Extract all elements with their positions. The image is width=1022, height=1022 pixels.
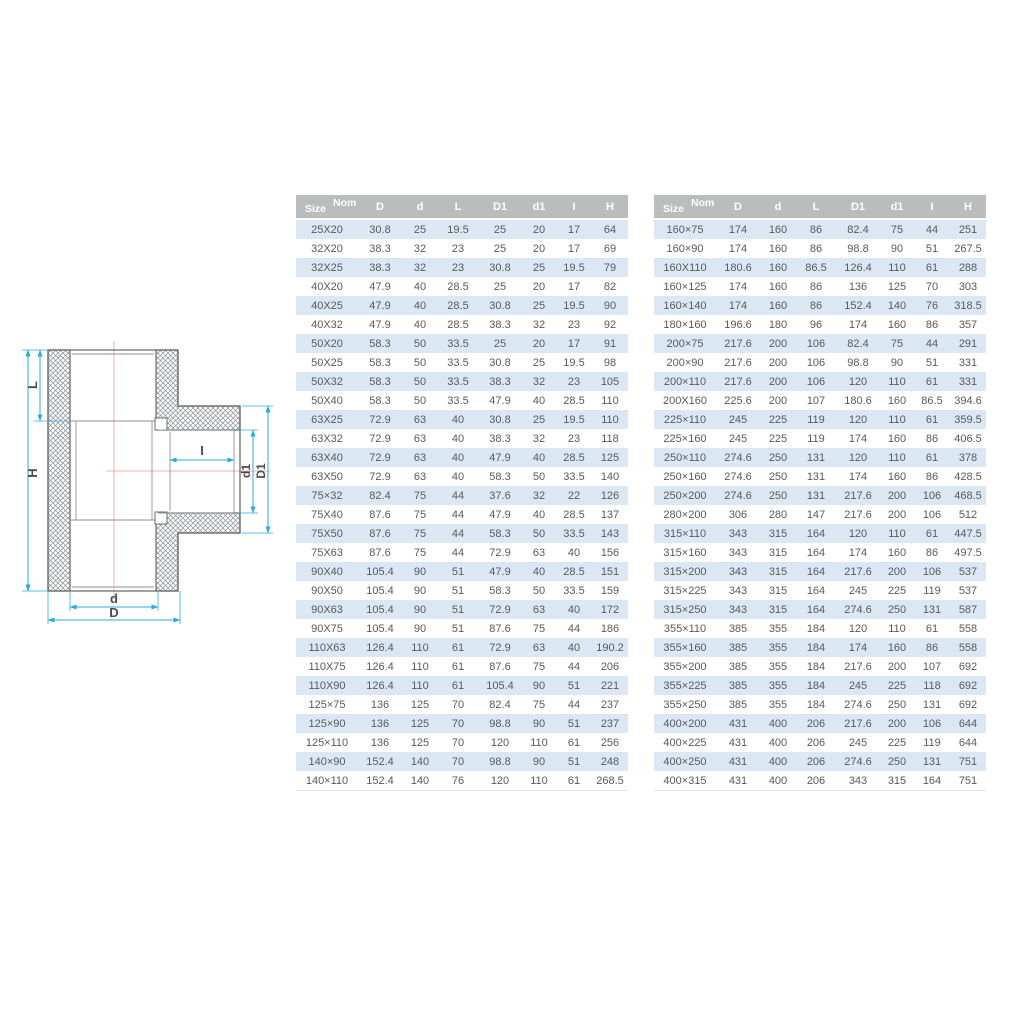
value-cell: 431 [716,752,760,771]
value-cell: 160 [880,543,914,562]
value-cell: 44 [556,695,592,714]
value-cell: 110 [880,524,914,543]
value-cell: 61 [556,771,592,791]
size-cell: 40X25 [296,296,358,315]
size-cell: 75X63 [296,543,358,562]
value-cell: 225 [760,429,796,448]
table-row: 75×3282.4754437.63222126 [296,486,628,505]
value-cell: 751 [950,752,986,771]
value-cell: 164 [796,600,836,619]
value-cell: 107 [914,657,950,676]
table-row: 50X2058.35033.525201791 [296,334,628,353]
value-cell: 120 [836,524,880,543]
column-header-H: H [950,195,986,219]
value-cell: 250 [880,600,914,619]
value-cell: 343 [716,562,760,581]
column-header-L: L [796,195,836,219]
value-cell: 44 [914,334,950,353]
table-row: 110X90126.411061105.49051221 [296,676,628,695]
value-cell: 50 [402,334,438,353]
value-cell: 447.5 [950,524,986,543]
value-cell: 245 [836,733,880,752]
value-cell: 217.6 [716,334,760,353]
dimension-table-small-sizes: SizeNomDdLD1d1IH25X2030.82519.5252017643… [296,195,628,791]
value-cell: 692 [950,676,986,695]
value-cell: 385 [716,676,760,695]
value-cell: 160 [880,429,914,448]
table-row: 225×11024522511912011061359.5 [654,410,986,429]
table-row: 40X2047.94028.525201782 [296,277,628,296]
size-cell: 250×110 [654,448,716,467]
table-row: 125×901361257098.89051237 [296,714,628,733]
value-cell: 51 [438,581,478,600]
value-cell: 75 [402,505,438,524]
value-cell: 30.8 [478,258,522,277]
size-cell: 90X63 [296,600,358,619]
value-cell: 87.6 [478,657,522,676]
size-cell: 315×200 [654,562,716,581]
value-cell: 19.5 [556,258,592,277]
value-cell: 225 [880,733,914,752]
value-cell: 692 [950,657,986,676]
value-cell: 315 [760,581,796,600]
table-row: 315×16034331516417416086497.5 [654,543,986,562]
dim-label-H: H [25,468,40,477]
value-cell: 315 [760,524,796,543]
value-cell: 303 [950,277,986,296]
value-cell: 692 [950,695,986,714]
value-cell: 76 [438,771,478,791]
table-row: 140×90152.41407098.89051248 [296,752,628,771]
value-cell: 44 [438,486,478,505]
value-cell: 61 [438,676,478,695]
value-cell: 30.8 [358,219,402,239]
size-cell: 400×200 [654,714,716,733]
table-row: 160X110180.616086.5126.411061288 [654,258,986,277]
size-cell: 40X20 [296,277,358,296]
value-cell: 32 [522,486,556,505]
value-cell: 200 [880,714,914,733]
table-row: 140×110152.41407612011061268.5 [296,771,628,791]
value-cell: 644 [950,714,986,733]
table-row: 50X3258.35033.538.33223105 [296,372,628,391]
value-cell: 25 [478,334,522,353]
tee-fitting-diagram: L H I d1 D1 d D [18,333,290,641]
value-cell: 25 [522,258,556,277]
value-cell: 110 [880,372,914,391]
value-cell: 105.4 [358,619,402,638]
value-cell: 217.6 [836,505,880,524]
value-cell: 237 [592,714,628,733]
value-cell: 61 [438,638,478,657]
value-cell: 63 [402,429,438,448]
value-cell: 355 [760,638,796,657]
dim-label-d: d [110,591,118,606]
value-cell: 225 [880,581,914,600]
size-cell: 400×225 [654,733,716,752]
size-cell: 63X32 [296,429,358,448]
nom-label: Nom [333,197,356,209]
value-cell: 119 [914,733,950,752]
value-cell: 110 [522,771,556,791]
table-row: 315×11034331516412011061447.5 [654,524,986,543]
value-cell: 28.5 [556,448,592,467]
value-cell: 174 [716,277,760,296]
value-cell: 92 [592,315,628,334]
value-cell: 106 [914,714,950,733]
size-cell: 315×160 [654,543,716,562]
value-cell: 23 [556,315,592,334]
value-cell: 140 [402,752,438,771]
value-cell: 274.6 [836,752,880,771]
value-cell: 33.5 [438,353,478,372]
value-cell: 40 [522,562,556,581]
value-cell: 136 [358,714,402,733]
value-cell: 512 [950,505,986,524]
size-cell: 140×110 [296,771,358,791]
value-cell: 32 [402,239,438,258]
value-cell: 250 [760,486,796,505]
value-cell: 86 [796,239,836,258]
value-cell: 90 [402,562,438,581]
value-cell: 50 [402,372,438,391]
value-cell: 225.6 [716,391,760,410]
value-cell: 537 [950,562,986,581]
size-label: Size [305,203,326,215]
value-cell: 200 [760,353,796,372]
value-cell: 20 [522,277,556,296]
value-cell: 87.6 [358,524,402,543]
value-cell: 431 [716,714,760,733]
value-cell: 190.2 [592,638,628,657]
value-cell: 76 [914,296,950,315]
value-cell: 152.4 [836,296,880,315]
value-cell: 331 [950,372,986,391]
value-cell: 51 [438,619,478,638]
size-cell: 315×250 [654,600,716,619]
value-cell: 90 [880,239,914,258]
value-cell: 72.9 [358,467,402,486]
value-cell: 105.4 [358,600,402,619]
value-cell: 160 [760,296,796,315]
value-cell: 40 [556,638,592,657]
value-cell: 82.4 [836,219,880,239]
value-cell: 32 [402,258,438,277]
table-row: 315×225343315164245225119537 [654,581,986,600]
value-cell: 63 [522,600,556,619]
value-cell: 180.6 [836,391,880,410]
value-cell: 136 [358,733,402,752]
value-cell: 86 [914,429,950,448]
value-cell: 23 [556,429,592,448]
value-cell: 280 [760,505,796,524]
table-row: 110X75126.41106187.67544206 [296,657,628,676]
value-cell: 37.6 [478,486,522,505]
value-cell: 200 [760,372,796,391]
value-cell: 51 [438,562,478,581]
table-row: 250×160274.625013117416086428.5 [654,467,986,486]
value-cell: 61 [914,524,950,543]
value-cell: 160 [760,258,796,277]
value-cell: 221 [592,676,628,695]
value-cell: 86 [914,315,950,334]
size-cell: 355×110 [654,619,716,638]
value-cell: 147 [796,505,836,524]
value-cell: 40 [402,296,438,315]
value-cell: 61 [914,410,950,429]
value-cell: 164 [796,543,836,562]
value-cell: 237 [592,695,628,714]
value-cell: 86 [796,296,836,315]
value-cell: 119 [796,429,836,448]
value-cell: 400 [760,752,796,771]
table-row: 250×200274.6250131217.6200106468.5 [654,486,986,505]
size-cell: 50X40 [296,391,358,410]
value-cell: 58.3 [358,334,402,353]
value-cell: 357 [950,315,986,334]
value-cell: 306 [716,505,760,524]
value-cell: 17 [556,334,592,353]
value-cell: 32 [522,429,556,448]
value-cell: 110 [402,638,438,657]
size-cell: 125×90 [296,714,358,733]
value-cell: 143 [592,524,628,543]
value-cell: 25 [478,219,522,239]
value-cell: 87.6 [478,619,522,638]
value-cell: 61 [438,657,478,676]
value-cell: 184 [796,657,836,676]
value-cell: 25 [402,219,438,239]
value-cell: 274.6 [716,486,760,505]
value-cell: 131 [796,448,836,467]
value-cell: 86 [914,467,950,486]
value-cell: 28.5 [438,315,478,334]
value-cell: 120 [836,410,880,429]
value-cell: 355 [760,676,796,695]
value-cell: 110 [880,619,914,638]
value-cell: 225 [880,676,914,695]
value-cell: 40 [522,391,556,410]
value-cell: 86.5 [914,391,950,410]
size-cell: 63X25 [296,410,358,429]
value-cell: 70 [914,277,950,296]
value-cell: 105.4 [358,562,402,581]
value-cell: 267.5 [950,239,986,258]
value-cell: 125 [592,448,628,467]
value-cell: 61 [914,258,950,277]
value-cell: 72.9 [358,429,402,448]
value-cell: 40 [438,410,478,429]
value-cell: 30.8 [478,410,522,429]
value-cell: 30.8 [478,296,522,315]
value-cell: 44 [438,524,478,543]
value-cell: 110 [402,676,438,695]
value-cell: 106 [796,334,836,353]
value-cell: 40 [402,277,438,296]
value-cell: 140 [592,467,628,486]
table-row: 50X4058.35033.547.94028.5110 [296,391,628,410]
column-header-D: D [716,195,760,219]
value-cell: 87.6 [358,505,402,524]
value-cell: 40 [556,543,592,562]
table-row: 200×75217.620010682.47544291 [654,334,986,353]
value-cell: 160 [880,315,914,334]
table-row: 400×315431400206343315164751 [654,771,986,791]
value-cell: 61 [556,733,592,752]
size-cell: 355×250 [654,695,716,714]
value-cell: 38.3 [478,315,522,334]
value-cell: 98.8 [836,239,880,258]
value-cell: 131 [914,695,950,714]
value-cell: 20 [522,334,556,353]
value-cell: 90 [402,581,438,600]
table-row: 355×200385355184217.6200107692 [654,657,986,676]
value-cell: 58.3 [478,581,522,600]
value-cell: 274.6 [836,600,880,619]
value-cell: 33.5 [438,391,478,410]
value-cell: 82.4 [358,486,402,505]
size-cell: 75X50 [296,524,358,543]
value-cell: 217.6 [836,714,880,733]
value-cell: 32 [522,315,556,334]
value-cell: 248 [592,752,628,771]
value-cell: 343 [836,771,880,791]
value-cell: 25 [478,277,522,296]
value-cell: 72.9 [478,543,522,562]
value-cell: 250 [880,752,914,771]
table-row: 75X4087.6754447.94028.5137 [296,505,628,524]
value-cell: 126.4 [358,657,402,676]
size-cell: 125×75 [296,695,358,714]
value-cell: 174 [836,543,880,562]
value-cell: 28.5 [556,562,592,581]
table-row: 160×14017416086152.414076318.5 [654,296,986,315]
value-cell: 38.3 [358,239,402,258]
dim-label-D: D [109,605,118,620]
value-cell: 164 [796,581,836,600]
table-row: 32X2538.3322330.82519.579 [296,258,628,277]
value-cell: 51 [556,752,592,771]
size-cell: 63X50 [296,467,358,486]
value-cell: 318.5 [950,296,986,315]
value-cell: 251 [950,219,986,239]
value-cell: 75 [522,657,556,676]
value-cell: 343 [716,581,760,600]
dim-label-d1: d1 [239,464,253,478]
column-header-H: H [592,195,628,219]
value-cell: 196.6 [716,315,760,334]
value-cell: 17 [556,239,592,258]
value-cell: 164 [914,771,950,791]
value-cell: 206 [796,733,836,752]
value-cell: 468.5 [950,486,986,505]
value-cell: 126.4 [358,676,402,695]
value-cell: 184 [796,695,836,714]
value-cell: 23 [438,258,478,277]
size-label: Size [663,203,684,215]
size-cell: 160×140 [654,296,716,315]
value-cell: 90 [402,600,438,619]
table-row: 25X2030.82519.525201764 [296,219,628,239]
value-cell: 126.4 [358,638,402,657]
value-cell: 206 [592,657,628,676]
value-cell: 22 [556,486,592,505]
size-cell: 90X75 [296,619,358,638]
value-cell: 385 [716,619,760,638]
value-cell: 497.5 [950,543,986,562]
size-cell: 355×225 [654,676,716,695]
value-cell: 245 [716,410,760,429]
value-cell: 33.5 [556,467,592,486]
value-cell: 63 [402,448,438,467]
value-cell: 75 [402,486,438,505]
table-row: 160×1251741608613612570303 [654,277,986,296]
value-cell: 206 [796,714,836,733]
value-cell: 174 [716,239,760,258]
value-cell: 98.8 [478,714,522,733]
value-cell: 200 [880,657,914,676]
value-cell: 110 [592,391,628,410]
size-cell: 125×110 [296,733,358,752]
value-cell: 58.3 [358,391,402,410]
value-cell: 125 [402,733,438,752]
value-cell: 90 [522,714,556,733]
value-cell: 119 [796,410,836,429]
value-cell: 44 [438,543,478,562]
value-cell: 40 [402,315,438,334]
size-cell: 25X20 [296,219,358,239]
size-cell: 315×225 [654,581,716,600]
column-header-I: I [914,195,950,219]
value-cell: 20 [522,239,556,258]
table-row: 63X5072.9634058.35033.5140 [296,467,628,486]
value-cell: 61 [914,448,950,467]
value-cell: 343 [716,543,760,562]
value-cell: 38.3 [478,372,522,391]
value-cell: 355 [760,657,796,676]
size-cell: 200×75 [654,334,716,353]
column-header-d: d [402,195,438,219]
table-row: 75X5087.6754458.35033.5143 [296,524,628,543]
table-row: 400×250431400206274.6250131751 [654,752,986,771]
table-row: 75X6387.6754472.96340156 [296,543,628,562]
value-cell: 63 [402,467,438,486]
size-cell: 140×90 [296,752,358,771]
size-cell: 200X160 [654,391,716,410]
value-cell: 217.6 [716,372,760,391]
value-cell: 159 [592,581,628,600]
size-cell: 160X110 [654,258,716,277]
size-cell: 355×200 [654,657,716,676]
table-row: 225×16024522511917416086406.5 [654,429,986,448]
value-cell: 131 [796,486,836,505]
value-cell: 431 [716,771,760,791]
size-cell: 75X40 [296,505,358,524]
value-cell: 70 [438,695,478,714]
value-cell: 274.6 [716,448,760,467]
table-row: 125×751361257082.47544237 [296,695,628,714]
value-cell: 98 [592,353,628,372]
size-cell: 315×110 [654,524,716,543]
value-cell: 152.4 [358,771,402,791]
value-cell: 82.4 [836,334,880,353]
value-cell: 51 [556,714,592,733]
value-cell: 136 [358,695,402,714]
value-cell: 288 [950,258,986,277]
size-cell: 160×125 [654,277,716,296]
value-cell: 86 [796,277,836,296]
value-cell: 23 [438,239,478,258]
